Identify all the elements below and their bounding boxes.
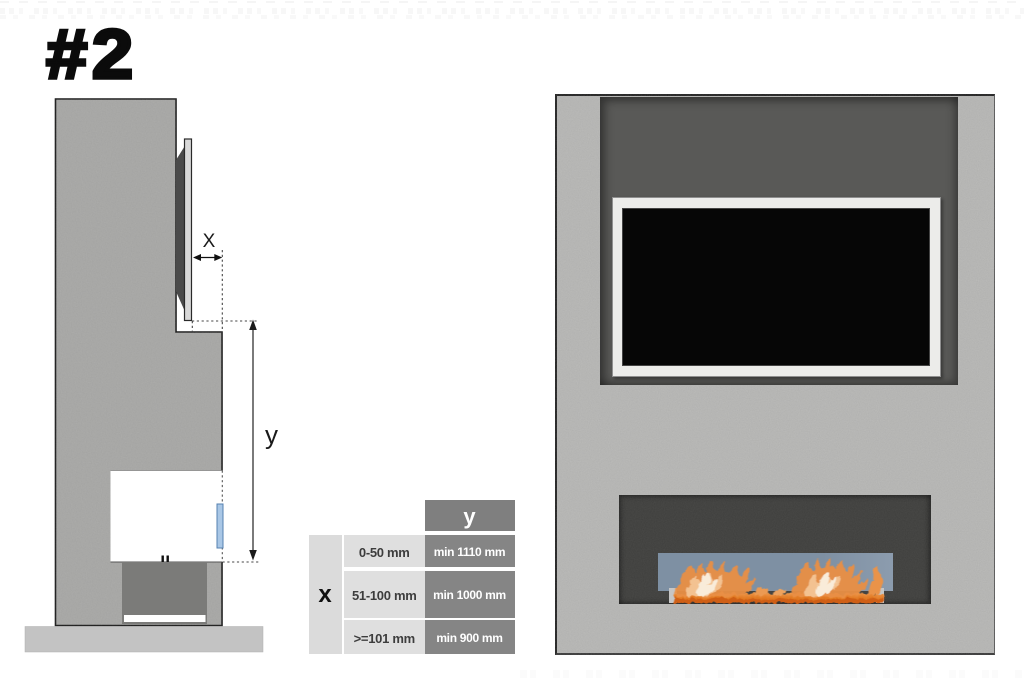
svg-text:X: X [203, 231, 216, 252]
svg-text:y: y [265, 420, 278, 450]
